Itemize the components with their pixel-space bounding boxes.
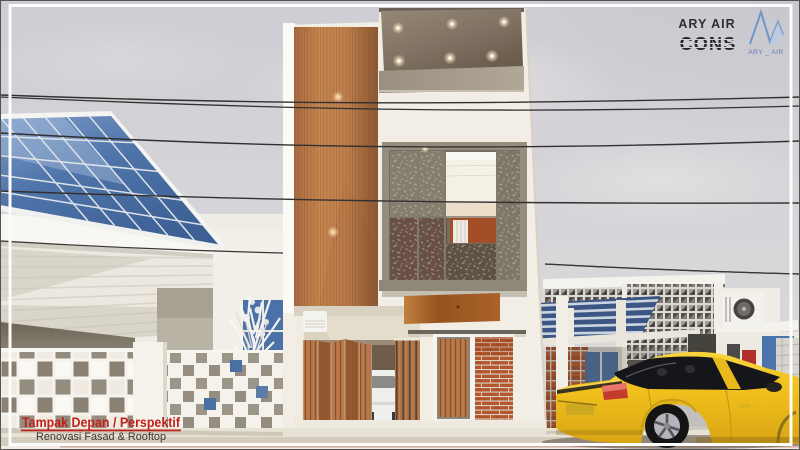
svg-text:Renovasi Fasad & Rooftop: Renovasi Fasad & Rooftop [36, 431, 166, 443]
svg-text:ARY _ AIR: ARY _ AIR [748, 49, 783, 56]
svg-text:ARY AIR: ARY AIR [678, 17, 735, 31]
svg-text:Tampak Depan / Perspektif: Tampak Depan / Perspektif [22, 414, 180, 430]
